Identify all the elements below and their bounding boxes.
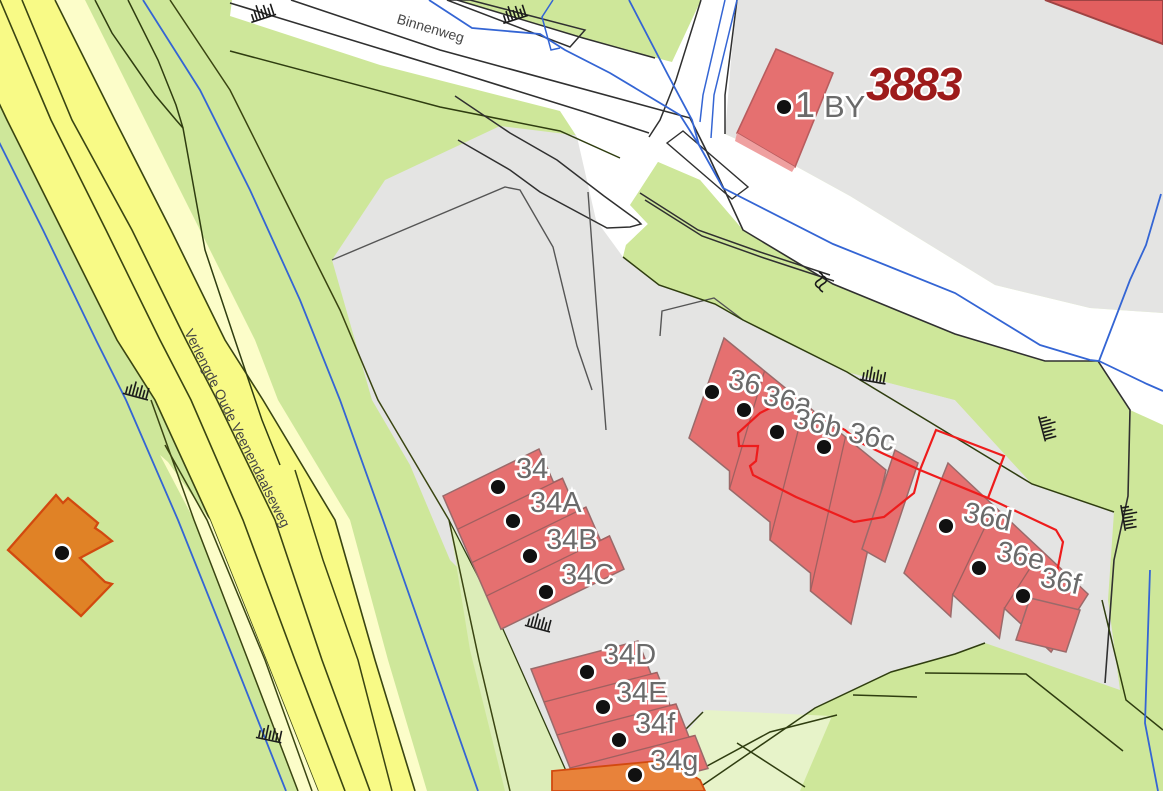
svg-text:34A: 34A [530,487,582,519]
svg-text:34D: 34D [603,639,656,671]
svg-text:34E: 34E [616,677,668,709]
svg-text:3883: 3883 [866,58,963,110]
svg-text:34C: 34C [561,559,614,591]
svg-text:34g: 34g [650,745,698,777]
svg-text:34: 34 [516,453,548,485]
svg-text:34B: 34B [546,524,598,556]
svg-text:1: 1 [795,84,815,125]
svg-text:BY: BY [824,89,865,124]
svg-text:34f: 34f [635,708,676,740]
